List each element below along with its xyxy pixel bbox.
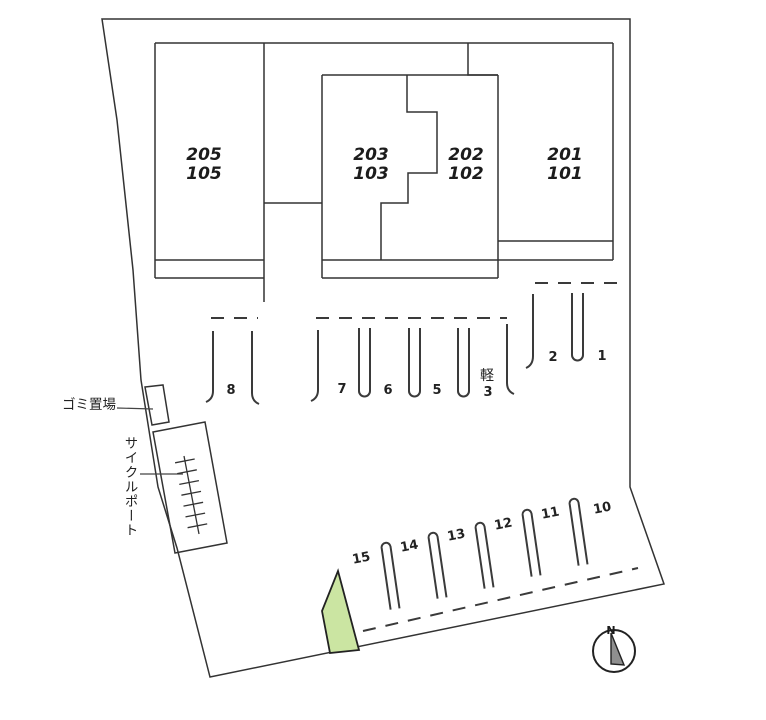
stall-number: 13 — [446, 526, 467, 544]
stall-divider-u — [523, 510, 541, 577]
building-203-202-divider — [381, 75, 437, 260]
site-plan: 205 105 203 103 202 102 201 101 2 1 8 — [0, 0, 766, 720]
stall-divider-u — [570, 499, 588, 566]
garbage-area-outline — [145, 385, 169, 425]
stall-divider — [507, 324, 514, 394]
stall-number: 14 — [399, 537, 420, 555]
stall-number: 5 — [432, 383, 441, 398]
stall-number: 2 — [548, 350, 557, 365]
unit-label-205: 205 — [186, 145, 222, 165]
kei-space-number: 3 — [483, 385, 492, 400]
stall-divider-u — [429, 533, 447, 599]
cycle-port — [140, 422, 227, 553]
stall-divider — [526, 294, 533, 368]
bicycle-rack-icon — [175, 456, 207, 534]
stall-number: 12 — [493, 515, 514, 533]
stall-number: 6 — [383, 383, 392, 398]
stall-divider-u — [409, 328, 420, 397]
parking-aisle-dashed-line — [363, 568, 638, 631]
stall-number: 8 — [226, 383, 235, 398]
cycle-port-label: サイクルポート — [121, 436, 137, 538]
stall-number: 10 — [592, 499, 613, 517]
parking-row-bottom: 15 14 13 12 11 10 — [351, 499, 638, 631]
garbage-area-label: ゴミ置場 — [52, 398, 116, 414]
stall-divider — [252, 331, 259, 404]
unit-label-203: 203 — [353, 145, 389, 165]
north-needle-icon — [611, 633, 624, 665]
stall-divider — [311, 330, 318, 401]
parking-row-upper-right: 2 1 — [526, 283, 617, 368]
unit-label-202: 202 — [448, 145, 484, 165]
stall-divider-u — [572, 293, 583, 361]
parking-row-middle: 8 7 6 5 軽 3 — [206, 318, 514, 404]
stall-divider-u — [458, 328, 469, 397]
site-boundary — [102, 19, 664, 677]
building-201-outline — [468, 43, 613, 260]
highlighted-space — [322, 571, 359, 653]
unit-label-103: 103 — [353, 164, 389, 184]
stall-divider-u — [476, 523, 494, 589]
unit-label-101: 101 — [547, 164, 583, 184]
stall-number: 7 — [337, 382, 346, 397]
stall-divider-u — [382, 543, 400, 610]
unit-label-102: 102 — [448, 164, 484, 184]
site-plan-drawing: 205 105 203 103 202 102 201 101 2 1 8 — [0, 0, 766, 720]
compass-north-label: N — [606, 624, 615, 637]
garbage-leader-line — [117, 408, 153, 409]
compass: N — [593, 624, 635, 672]
stall-number: 15 — [351, 549, 372, 567]
unit-label-105: 105 — [186, 164, 222, 184]
stall-number: 1 — [597, 349, 606, 364]
stall-divider-u — [359, 328, 370, 397]
stall-divider — [206, 331, 213, 402]
kei-space-label: 軽 — [480, 368, 494, 384]
stall-number: 11 — [540, 504, 561, 522]
unit-label-201: 201 — [547, 145, 583, 165]
